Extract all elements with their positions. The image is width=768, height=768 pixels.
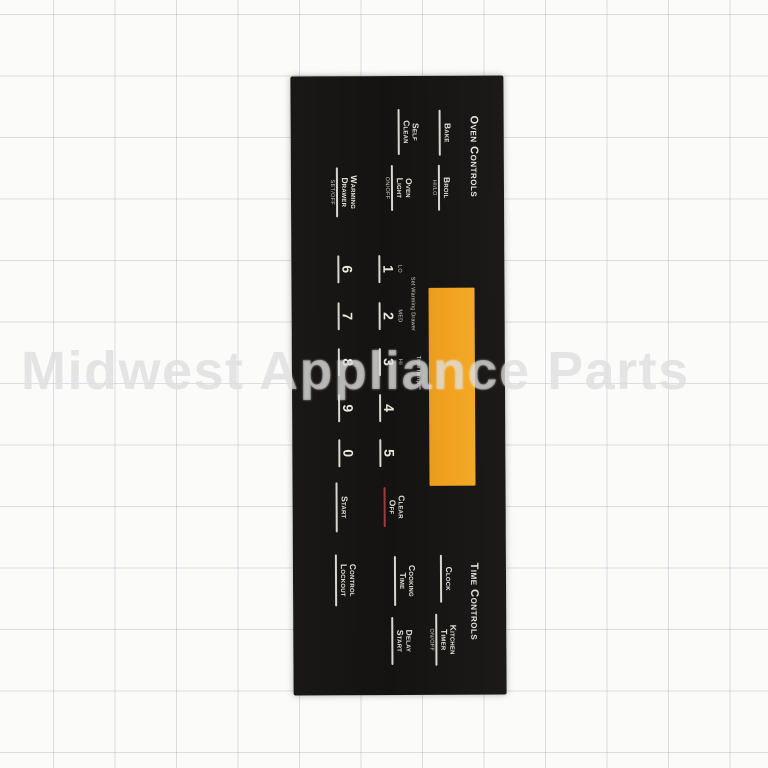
key-6: 6 bbox=[337, 252, 354, 286]
oven-controls-title: Oven Controls bbox=[468, 116, 480, 198]
key-2: MED 2 bbox=[379, 299, 403, 333]
key-7: 7 bbox=[338, 299, 355, 333]
key-5: 5 bbox=[379, 436, 403, 470]
clear-off-key: Clear Off bbox=[383, 487, 406, 527]
control-lockout-key: Control Lockout bbox=[334, 554, 357, 606]
delay-start-underline bbox=[391, 617, 393, 665]
time-controls-title: Time Controls bbox=[468, 563, 480, 641]
broil-key: Broil HI/LO bbox=[430, 165, 451, 211]
key-1: LO 1 bbox=[378, 252, 402, 286]
oven-light-key: Oven Light ON/OFF bbox=[383, 165, 413, 211]
clock-key: Clock bbox=[439, 555, 453, 603]
clock-underline bbox=[440, 555, 442, 603]
start-key: Start bbox=[335, 482, 355, 532]
self-clean-underline bbox=[398, 109, 400, 155]
product-photo: Oven Controls Bake Self Clean Broil HI/L… bbox=[0, 0, 768, 768]
delay-start-key: Delay Start bbox=[390, 617, 413, 665]
cooking-time-key: Cooking Time bbox=[393, 556, 416, 606]
self-clean-key: Self Clean bbox=[397, 109, 420, 155]
broil-underline bbox=[438, 165, 440, 211]
oven-light-underline bbox=[391, 165, 393, 211]
kitchen-timer-underline bbox=[435, 614, 437, 666]
key-0: 0 bbox=[338, 436, 355, 470]
bake-key: Bake bbox=[438, 110, 452, 156]
kitchen-timer-key: Kitchen Timer ON/OFF bbox=[427, 614, 457, 666]
bake-underline bbox=[439, 110, 441, 156]
clear-off-red-underline bbox=[384, 487, 386, 527]
control-lockout-underline bbox=[335, 554, 337, 606]
watermark-text: Midwest Appliance Parts bbox=[21, 342, 768, 400]
start-underline bbox=[336, 482, 338, 532]
warming-drawer-underline bbox=[336, 167, 338, 217]
cooking-time-underline bbox=[394, 556, 396, 606]
set-warming-drawer-note: Set Warming Drawer bbox=[409, 254, 416, 354]
warming-drawer-key: Warming Drawer SET/OFF bbox=[328, 167, 358, 217]
